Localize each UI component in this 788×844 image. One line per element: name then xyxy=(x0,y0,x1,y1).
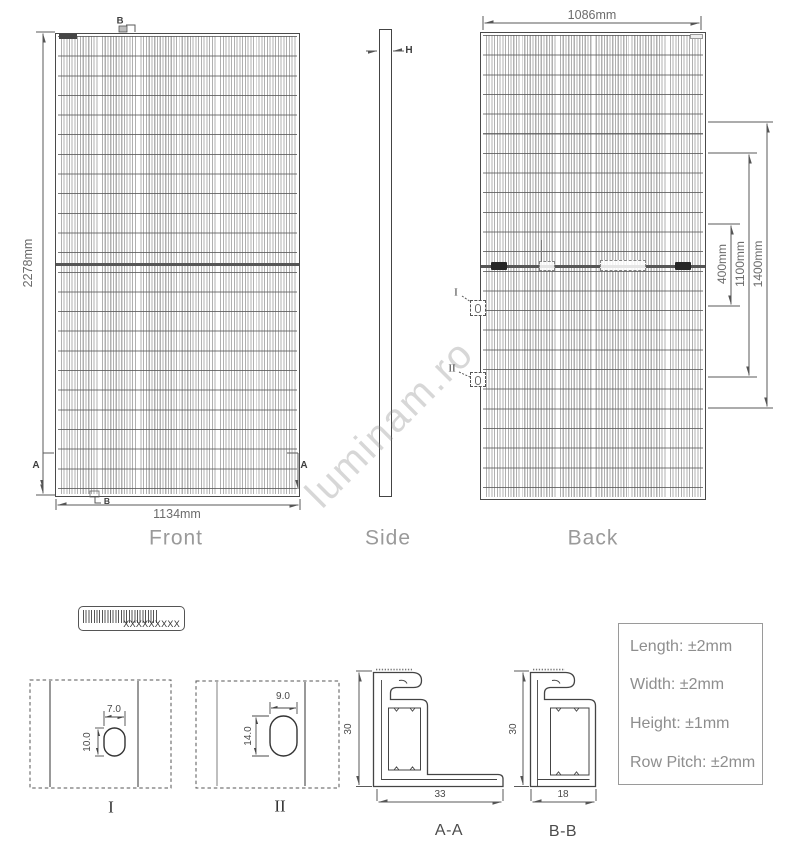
detail-ii-drawing xyxy=(196,681,339,788)
back-width-dimension xyxy=(483,16,701,30)
front-section-b-marks xyxy=(90,25,135,503)
back-detail-leaders xyxy=(459,296,471,377)
tolerance-length: Length: ±2mm xyxy=(630,638,732,656)
technical-drawing-page: { "watermark": "luminam.ro", "views": { … xyxy=(0,0,788,844)
tolerance-width: Width: ±2mm xyxy=(630,676,724,694)
tolerance-height: Height: ±1mm xyxy=(630,715,729,733)
tolerance-row-pitch: Row Pitch: ±2mm xyxy=(630,754,755,772)
detail-i-drawing xyxy=(30,680,171,788)
front-width-dimension xyxy=(56,499,300,510)
front-section-a-marks xyxy=(43,453,298,489)
front-height-dimension xyxy=(36,32,55,495)
section-aa-profile xyxy=(356,670,503,802)
section-bb-profile xyxy=(514,670,596,802)
back-mount-dimensions xyxy=(708,122,773,408)
